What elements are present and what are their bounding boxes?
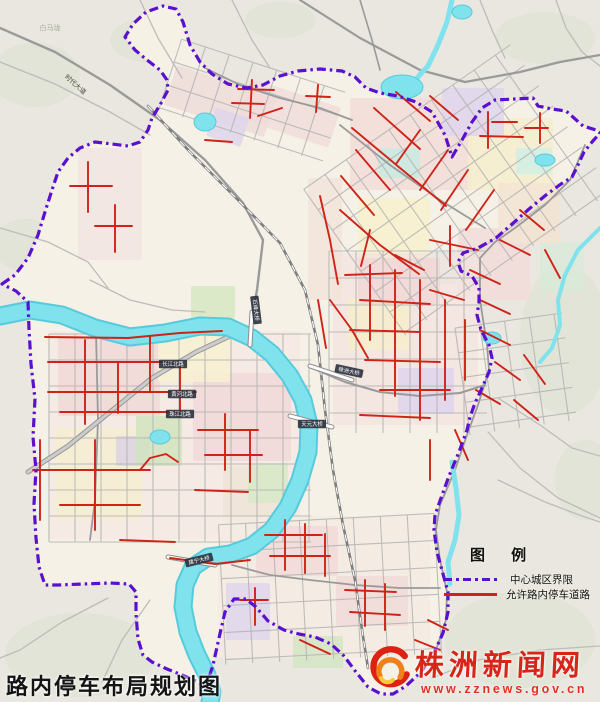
zznews-logo-icon xyxy=(369,645,413,691)
road-name-plate: 黄河北路 xyxy=(168,390,196,398)
legend-row-parking: 允许路内停车道路 xyxy=(444,587,596,602)
road-name-plate: 珠江北路 xyxy=(166,410,194,418)
legend-label-boundary: 中心城区界限 xyxy=(510,572,573,587)
watermark-site-name: 株洲新闻网 xyxy=(414,642,586,684)
legend-heading: 图 例 xyxy=(470,544,596,565)
map-label: 白马垅 xyxy=(40,23,61,32)
svg-text:黄河北路: 黄河北路 xyxy=(171,390,193,398)
boundary-line-sample xyxy=(444,578,501,581)
road-name-plate: 天元大桥 xyxy=(298,420,326,428)
map-screenshot: 长江北路黄河北路珠江北路株洲大桥天元大桥建宁大桥石峰大桥时代大道白马垅 图 例 … xyxy=(0,0,600,702)
map-legend: 图 例 中心城区界限 允许路内停车道路 xyxy=(444,544,596,602)
legend-row-boundary: 中心城区界限 xyxy=(444,572,596,587)
svg-text:珠江北路: 珠江北路 xyxy=(169,410,191,418)
legend-label-parking: 允许路内停车道路 xyxy=(506,587,590,602)
svg-text:长江北路: 长江北路 xyxy=(162,360,184,368)
svg-text:天元大桥: 天元大桥 xyxy=(301,420,323,428)
parking-road-sample xyxy=(444,593,497,596)
watermark-url: www.zznews.gov.cn xyxy=(421,682,587,696)
page-title: 路内停车布局规划图 xyxy=(6,669,222,701)
road-name-plate: 长江北路 xyxy=(159,360,187,368)
